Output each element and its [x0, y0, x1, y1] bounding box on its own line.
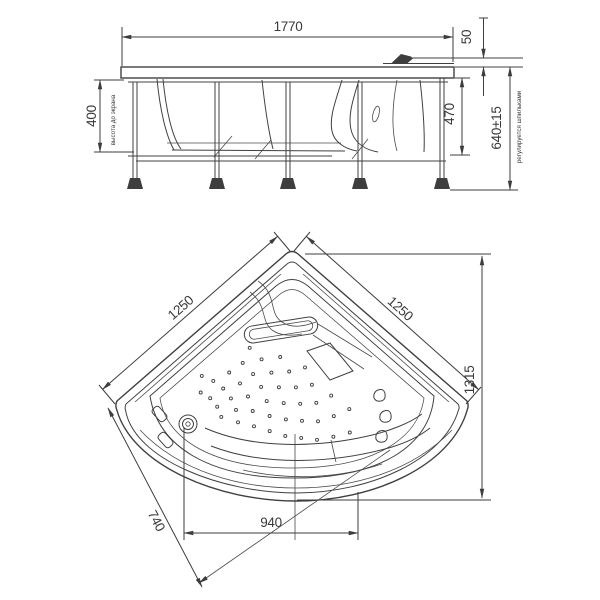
dim-470-label: 470: [442, 103, 457, 125]
dim-400-note: высота до экрана: [110, 94, 117, 145]
dim-640-note: регулируется шпильками: [516, 90, 523, 163]
technical-drawing: 1770 50 400 высота до экрана 470: [0, 0, 600, 600]
dim-400-label: 400: [84, 105, 99, 127]
dim-1315-label: 1315: [462, 366, 477, 395]
dim-1770-label: 1770: [274, 19, 303, 34]
dim-50-label: 50: [459, 30, 474, 44]
bathtub-drawing-canvas: 1770 50 400 высота до экрана 470: [0, 0, 600, 600]
dim-640-label: 640±15: [489, 106, 504, 149]
